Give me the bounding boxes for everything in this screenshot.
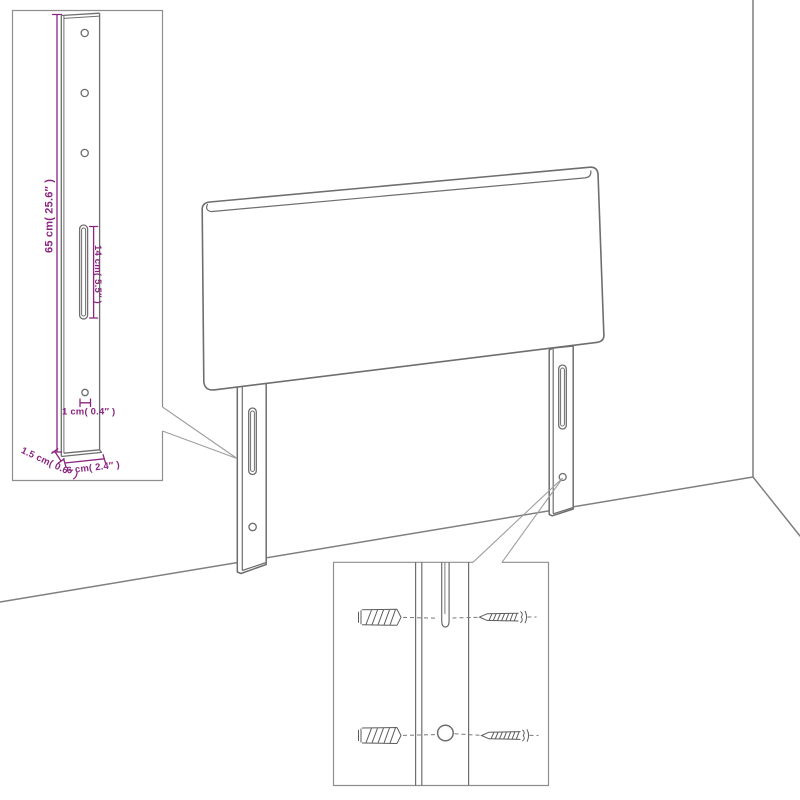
inset-border (334, 562, 549, 785)
right-leg (549, 346, 573, 516)
mounting-slot-icon (442, 562, 449, 627)
leader-lines (163, 407, 563, 562)
panel-outline (202, 167, 604, 390)
headboard-assembly-diagram: 65 cm( 25.6″ ) 14 cm( 5.5″ ) 1 cm( 0.4″ … (0, 0, 800, 800)
wall-plug-icon (359, 609, 402, 625)
screw-hole-icon (249, 523, 256, 530)
hole-diameter-dimension-label: 1 cm( 0.4″ ) (62, 407, 115, 418)
detail-inset-mounting (334, 562, 549, 785)
mounting-slot-icon (80, 225, 88, 319)
screw-icon (480, 611, 527, 623)
screw-icon (482, 729, 529, 741)
screw-hole-icon (81, 29, 88, 36)
screw-hole-icon (81, 89, 88, 96)
alignment-dashed-lines (403, 617, 539, 735)
diagram-canvas: 65 cm( 25.6″ ) 14 cm( 5.5″ ) 1 cm( 0.4″ … (0, 0, 800, 800)
dimension-line-1cm (80, 399, 91, 407)
floor-line-right (753, 477, 800, 536)
dimension-lines (52, 15, 106, 468)
leader-to-left-leg (163, 407, 238, 459)
screw-hole-icon (438, 725, 454, 741)
leg-detail-drawing (61, 13, 101, 456)
wall-plug-icon (359, 728, 402, 744)
leg-height-dimension-label: 65 cm( 25.6″ ) (44, 179, 56, 253)
left-leg (237, 381, 266, 574)
screw-hole-icon (559, 474, 566, 481)
headboard-panel (202, 167, 604, 390)
screw-hole-icon (81, 149, 88, 156)
leg-section-drawing (416, 562, 469, 785)
mounting-slot-icon (559, 365, 567, 429)
floor-line-left (0, 477, 753, 602)
mounting-slot-icon (249, 408, 257, 475)
detail-inset-leg: 65 cm( 25.6″ ) 14 cm( 5.5″ ) 1 cm( 0.4″ … (13, 11, 163, 482)
leader-to-mounting-hole (473, 478, 563, 562)
slot-length-dimension-label: 14 cm( 5.5″ ) (92, 245, 103, 304)
screw-hole-icon (82, 389, 88, 395)
